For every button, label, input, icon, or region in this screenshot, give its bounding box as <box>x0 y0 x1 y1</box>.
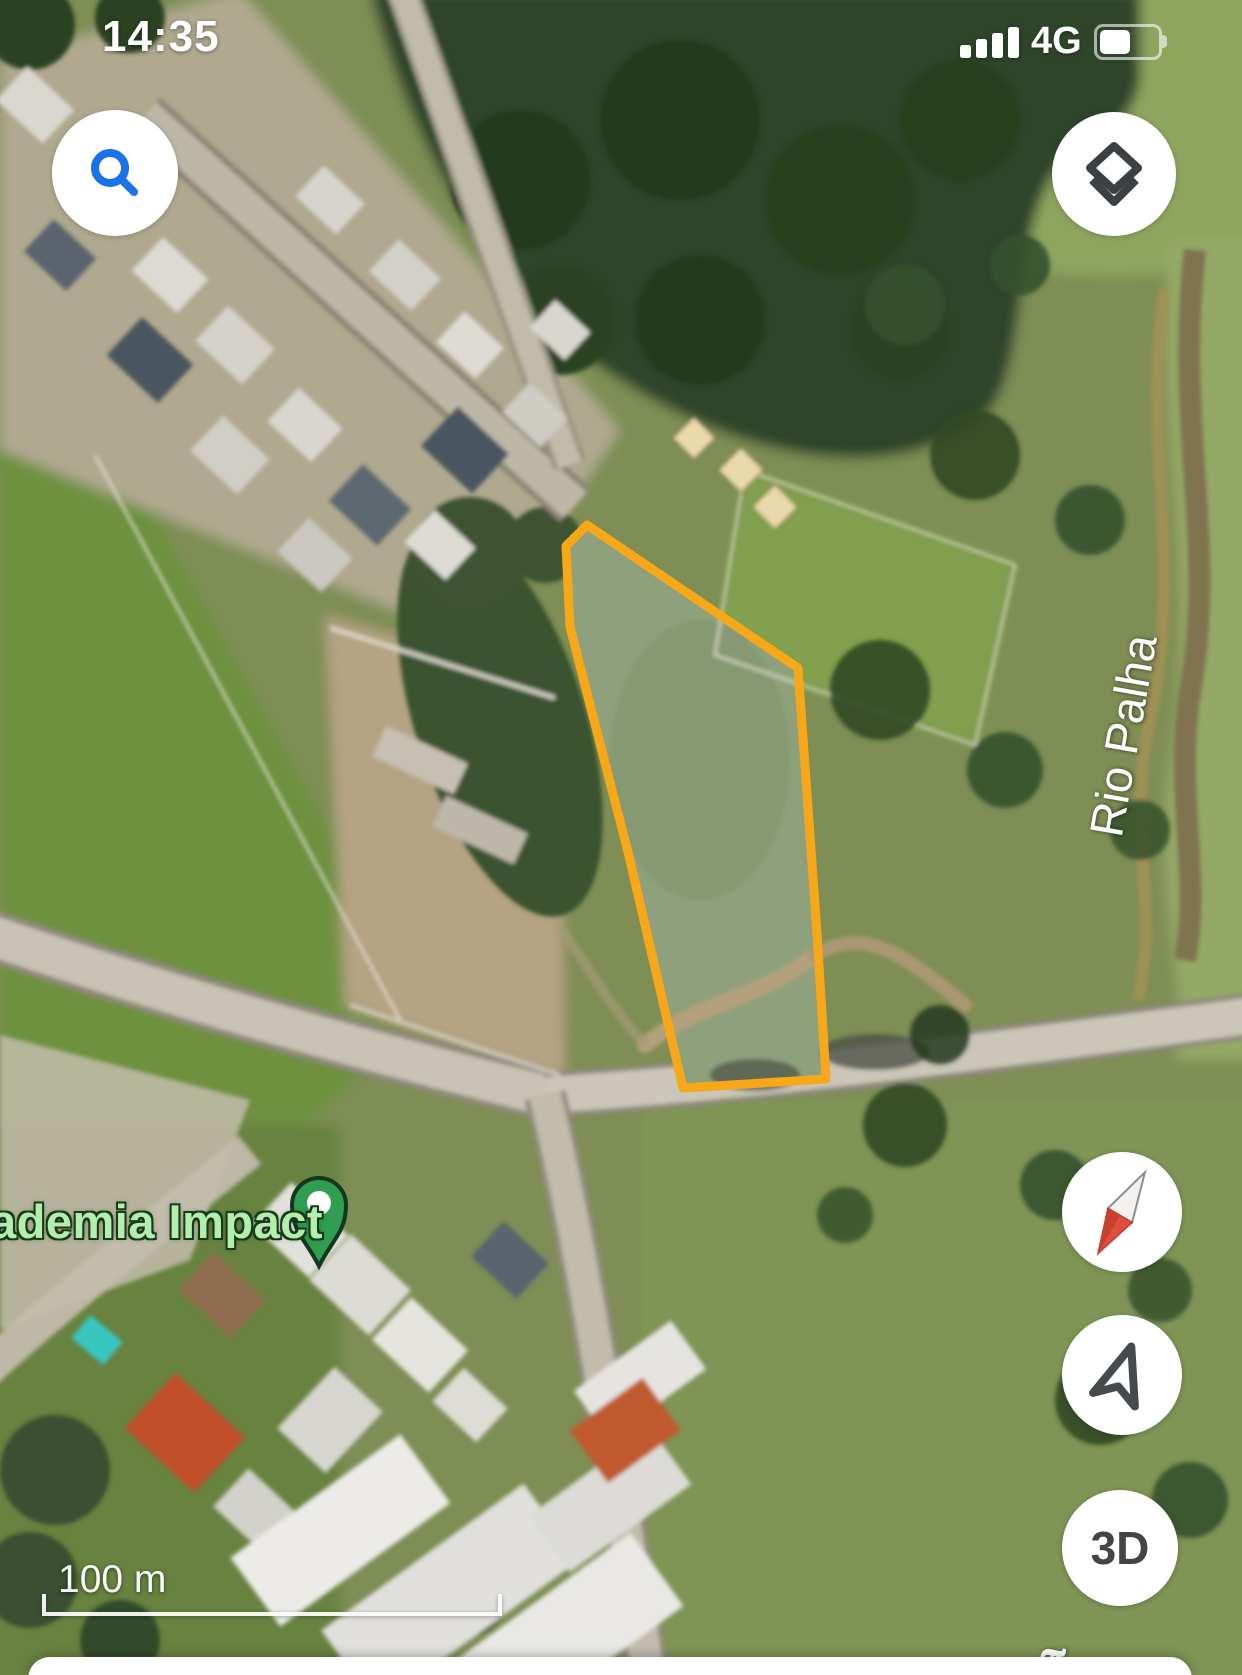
layers-icon <box>1082 140 1146 208</box>
map-view[interactable]: ademia Impact Rio Palha a 14:35 4G <box>0 0 1242 1675</box>
cellular-signal-icon <box>960 26 1019 58</box>
layers-button[interactable] <box>1052 112 1176 236</box>
compass-button[interactable] <box>1062 1152 1182 1272</box>
3d-button[interactable]: 3D <box>1062 1490 1178 1606</box>
bottom-sheet[interactable] <box>28 1657 1192 1675</box>
network-type-label: 4G <box>1031 20 1082 63</box>
river-label: Rio Palha <box>1072 593 1175 878</box>
place-label[interactable]: ademia Impact <box>0 1194 323 1249</box>
3d-button-label: 3D <box>1091 1521 1150 1575</box>
parcel-overlay <box>0 0 1242 1675</box>
search-button[interactable] <box>52 110 178 236</box>
compass-icon <box>1067 1157 1177 1267</box>
search-icon <box>86 144 144 202</box>
battery-icon <box>1094 24 1162 60</box>
my-location-button[interactable] <box>1062 1315 1182 1435</box>
navigation-arrow-icon <box>1079 1332 1165 1418</box>
clock: 14:35 <box>102 12 220 62</box>
parcel-outline[interactable] <box>566 525 826 1088</box>
scale-bar <box>42 1594 502 1616</box>
